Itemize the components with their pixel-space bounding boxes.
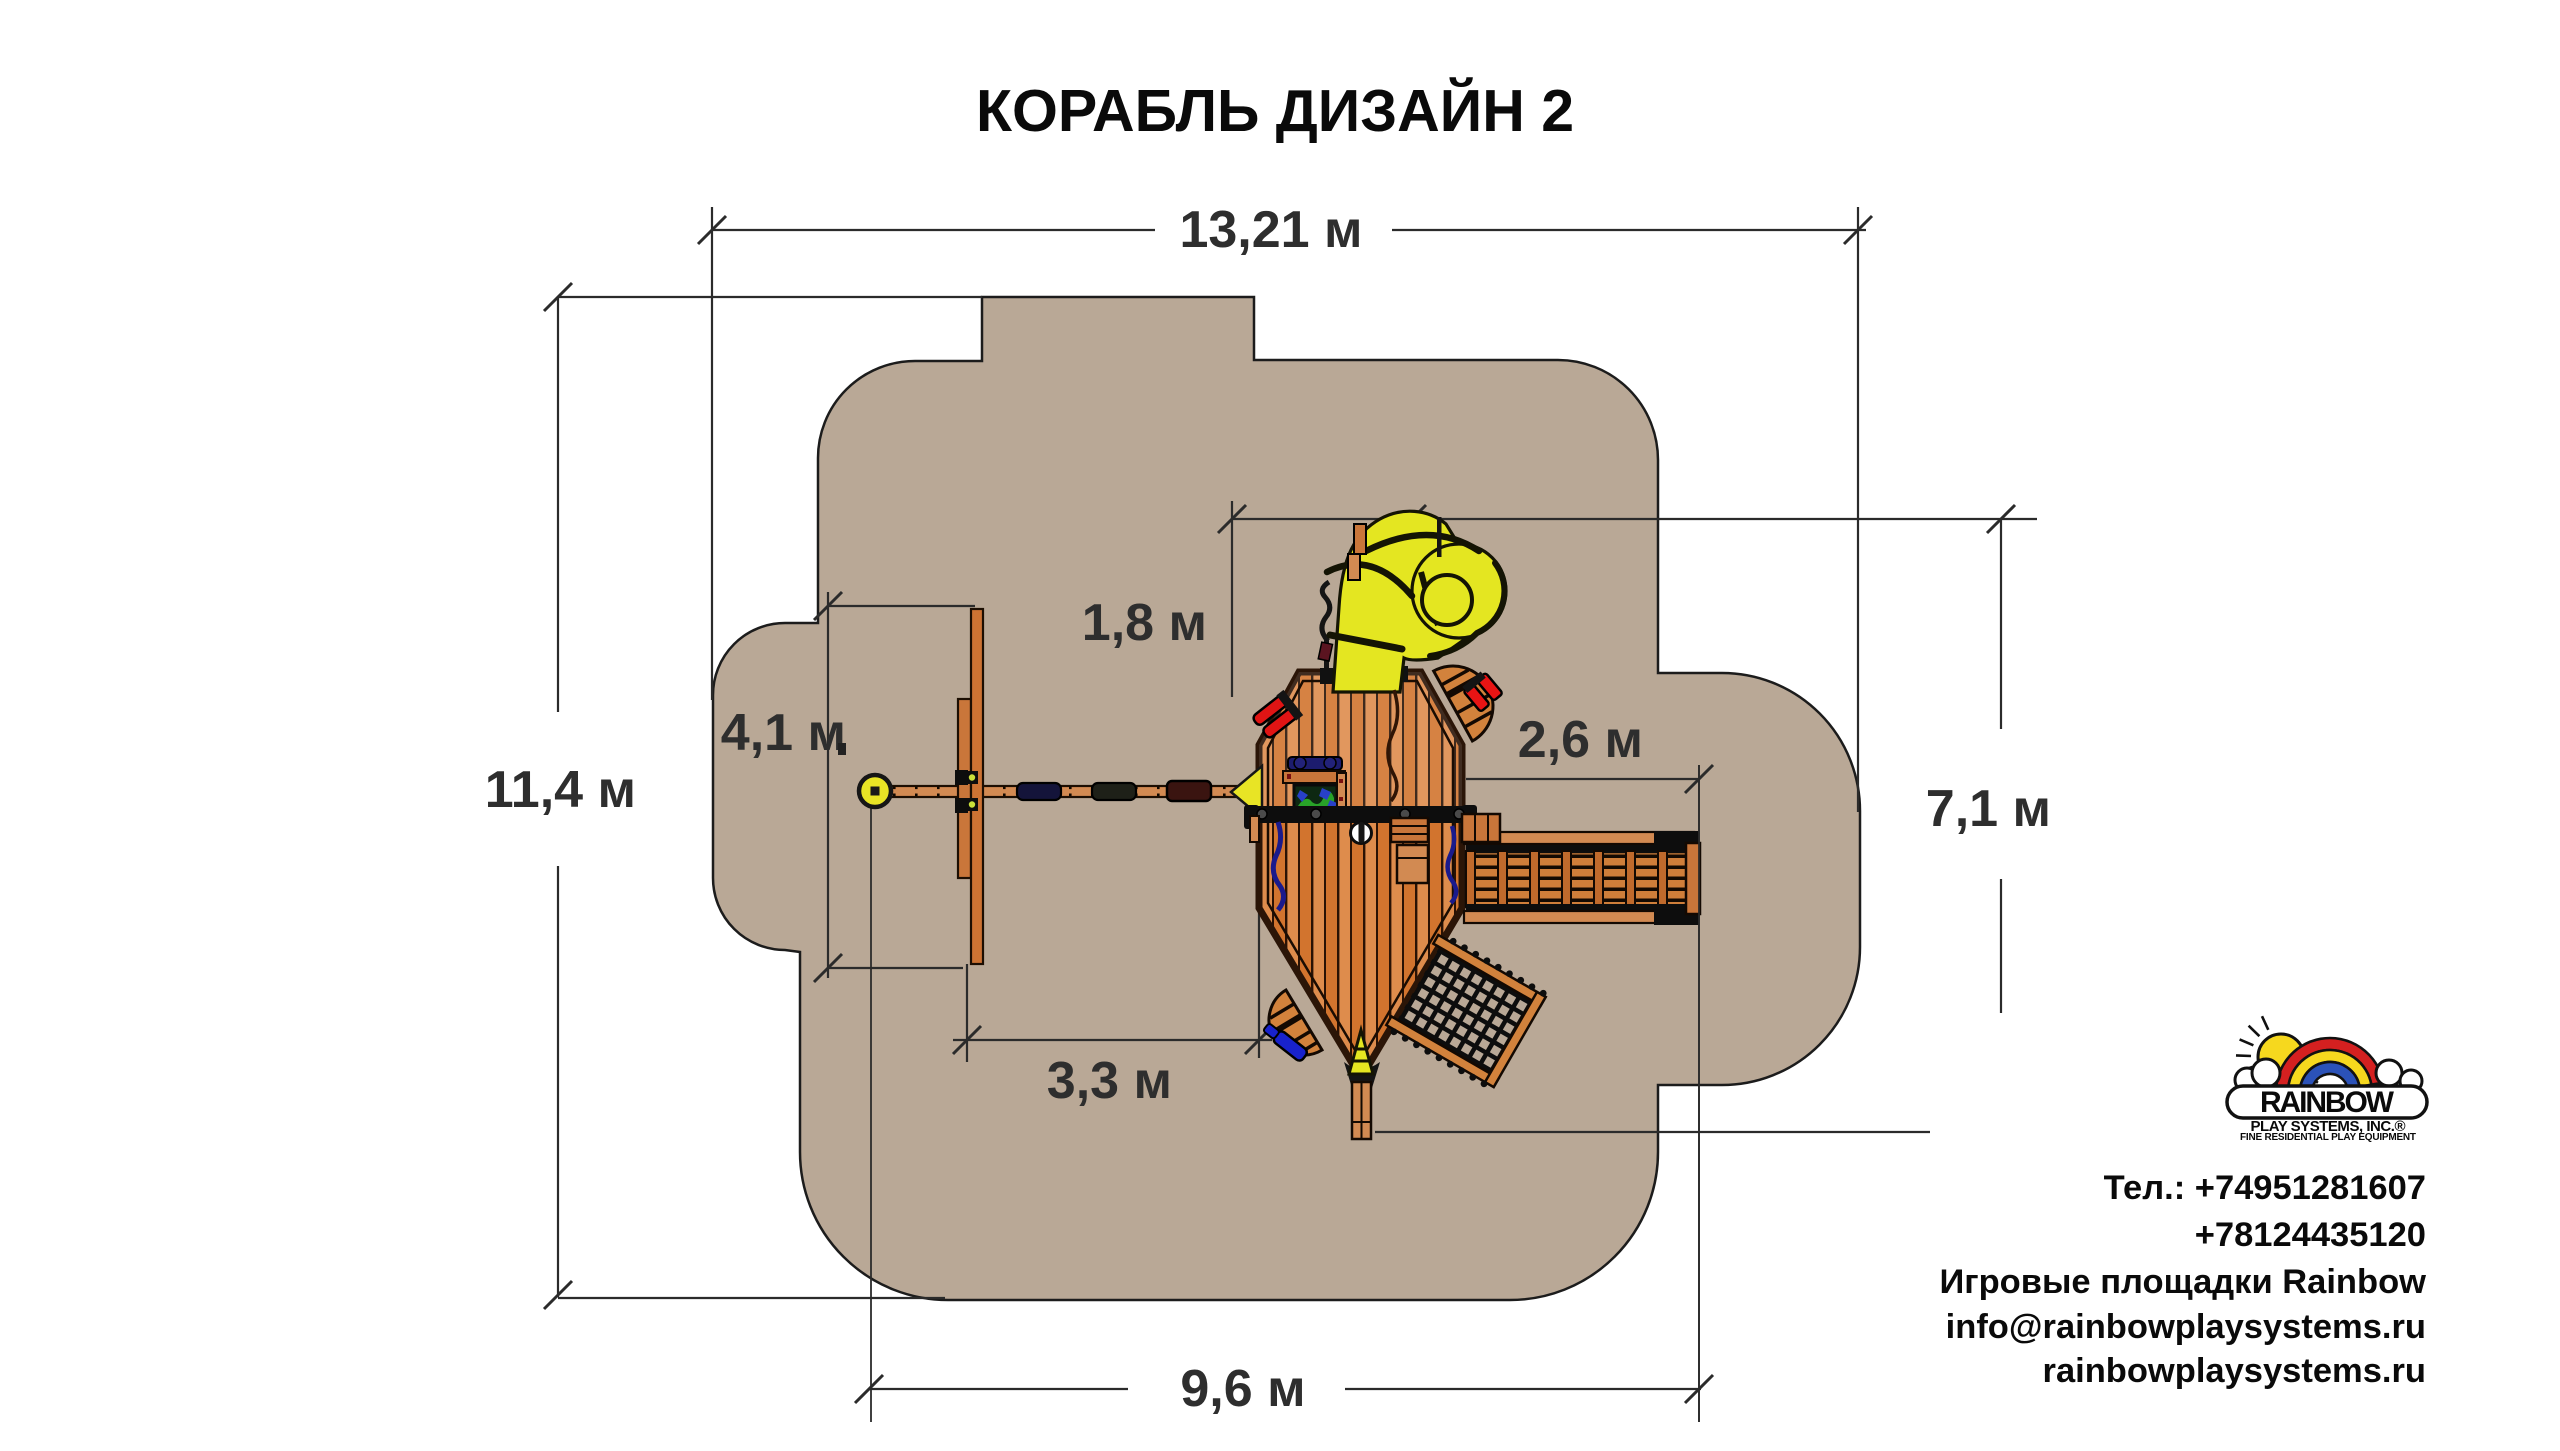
- svg-text:info@rainbowplaysystems.ru: info@rainbowplaysystems.ru: [1946, 1308, 2426, 1346]
- svg-text:Игровые площадки Rainbow: Игровые площадки Rainbow: [1939, 1263, 2426, 1301]
- svg-text:RAINBOW: RAINBOW: [2260, 1086, 2395, 1119]
- svg-text:9,6 м: 9,6 м: [1180, 1360, 1305, 1418]
- svg-text:rainbowplaysystems.ru: rainbowplaysystems.ru: [2043, 1352, 2426, 1390]
- svg-text:2,6 м: 2,6 м: [1518, 711, 1643, 769]
- svg-text:1,8 м: 1,8 м: [1082, 594, 1207, 652]
- svg-text:7,1 м: 7,1 м: [1926, 780, 2051, 838]
- svg-text:11,4 м: 11,4 м: [485, 761, 636, 819]
- svg-text:4,1 м: 4,1 м: [721, 704, 846, 762]
- svg-text:FINE RESIDENTIAL PLAY EQUIPMEN: FINE RESIDENTIAL PLAY EQUIPMENT: [2240, 1132, 2416, 1143]
- svg-text:13,21 м: 13,21 м: [1179, 201, 1362, 259]
- svg-text:+78124435120: +78124435120: [2195, 1216, 2426, 1254]
- svg-text:Тел.: +74951281607: Тел.: +74951281607: [2104, 1169, 2426, 1207]
- svg-text:3,3 м: 3,3 м: [1047, 1052, 1172, 1110]
- svg-text:КОРАБЛЬ ДИЗАЙН 2: КОРАБЛЬ ДИЗАЙН 2: [976, 77, 1574, 144]
